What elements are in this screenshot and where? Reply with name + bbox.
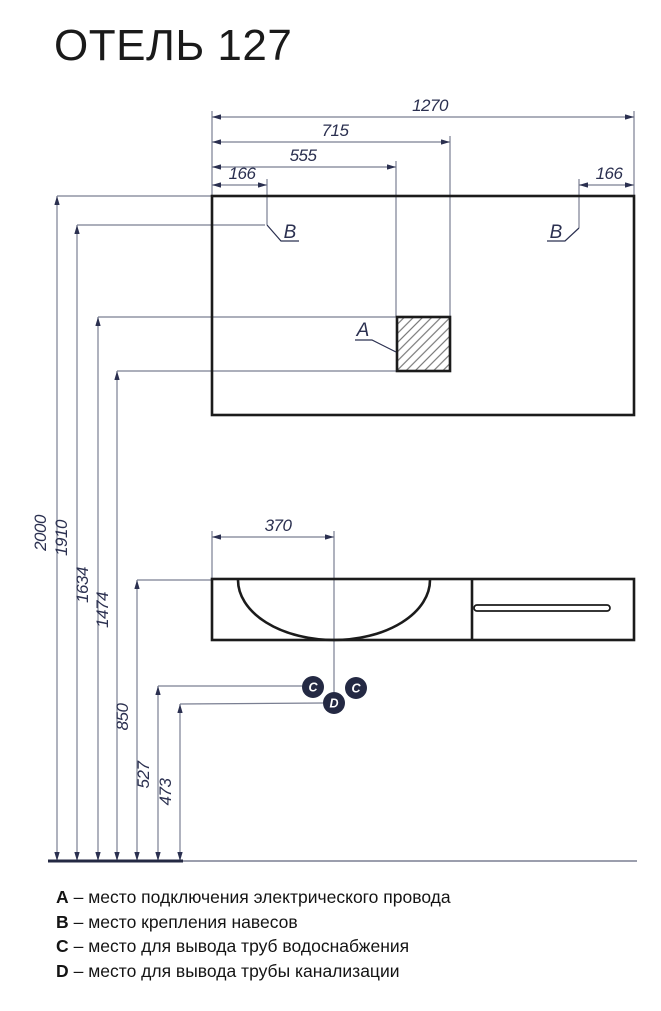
dim-socket-top: 1634 [73, 567, 92, 603]
legend-text-d: – место для вывода трубы канализации [74, 961, 400, 981]
drawing-sheet: ОТЕЛЬ 127 [0, 0, 661, 1011]
svg-text:C: C [351, 682, 361, 696]
height-dimension-lines [57, 196, 397, 861]
leader-socket-a: A [355, 320, 396, 352]
legend-item-d: D– место для вывода трубы канализации [56, 959, 451, 984]
dim-total-width: 1270 [412, 96, 449, 115]
legend-key-b: B [56, 912, 69, 932]
leader-hanger-b-left: B [267, 222, 299, 243]
point-water-left: C [302, 676, 324, 698]
dim-basin-height: 850 [113, 703, 132, 731]
svg-text:D: D [329, 697, 338, 711]
dim-socket-right: 715 [322, 121, 350, 140]
legend-key-d: D [56, 961, 69, 981]
legend: A– место подключения электрического пров… [56, 885, 451, 983]
point-drain: D [323, 692, 345, 714]
dim-hanger-left: 166 [229, 164, 257, 183]
point-water-right: C [345, 677, 367, 699]
dim-drain-height: 473 [156, 778, 175, 806]
leader-hanger-b-right: B [547, 222, 579, 243]
legend-text-b: – место крепления навесов [74, 912, 298, 932]
washbasin-cabinet [212, 579, 634, 640]
label-hanger-b-right: B [550, 222, 563, 243]
dim-hanger-height: 1910 [52, 519, 71, 556]
installation-diagram: 1270 715 555 166 166 370 2000 1910 1634 … [0, 0, 661, 1011]
wall-panel [212, 196, 634, 415]
dim-total-height: 2000 [31, 514, 50, 552]
label-socket-a: A [356, 320, 370, 341]
legend-key-a: A [56, 887, 69, 907]
dim-hanger-right: 166 [596, 164, 624, 183]
dim-water-height: 527 [134, 761, 153, 789]
legend-text-a: – место подключения электрического прово… [74, 887, 451, 907]
towel-rail [474, 605, 610, 611]
dim-socket-left: 555 [290, 146, 318, 165]
label-hanger-b-left: B [284, 222, 297, 243]
svg-text:C: C [308, 681, 318, 695]
socket-box [397, 317, 450, 371]
legend-item-a: A– место подключения электрического пров… [56, 885, 451, 910]
legend-item-b: B– место крепления навесов [56, 910, 451, 935]
legend-text-c: – место для вывода труб водоснабжения [74, 936, 410, 956]
legend-item-c: C– место для вывода труб водоснабжения [56, 934, 451, 959]
dim-drain-offset: 370 [265, 516, 293, 535]
dim-socket-bottom: 1474 [93, 592, 112, 628]
legend-key-c: C [56, 936, 69, 956]
